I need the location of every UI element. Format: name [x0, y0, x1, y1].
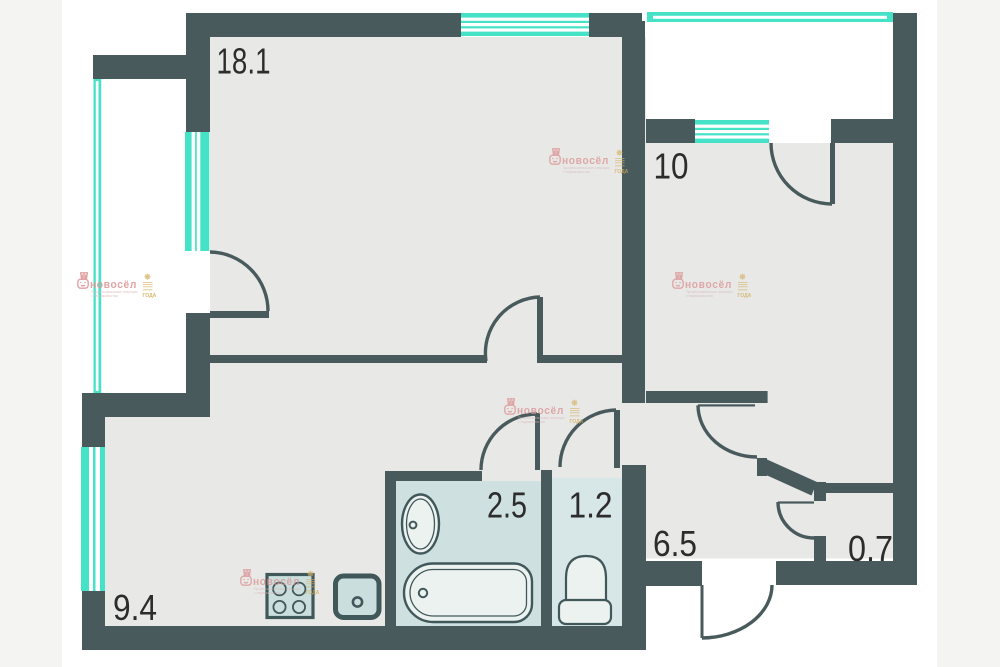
svg-text:18.1: 18.1 [217, 41, 271, 82]
svg-text:1.2: 1.2 [569, 485, 613, 526]
svg-text:6.5: 6.5 [653, 523, 697, 564]
svg-text:2.5: 2.5 [487, 485, 527, 526]
svg-text:10: 10 [654, 146, 689, 187]
svg-text:0.7: 0.7 [848, 528, 893, 569]
svg-text:9.4: 9.4 [113, 587, 157, 628]
